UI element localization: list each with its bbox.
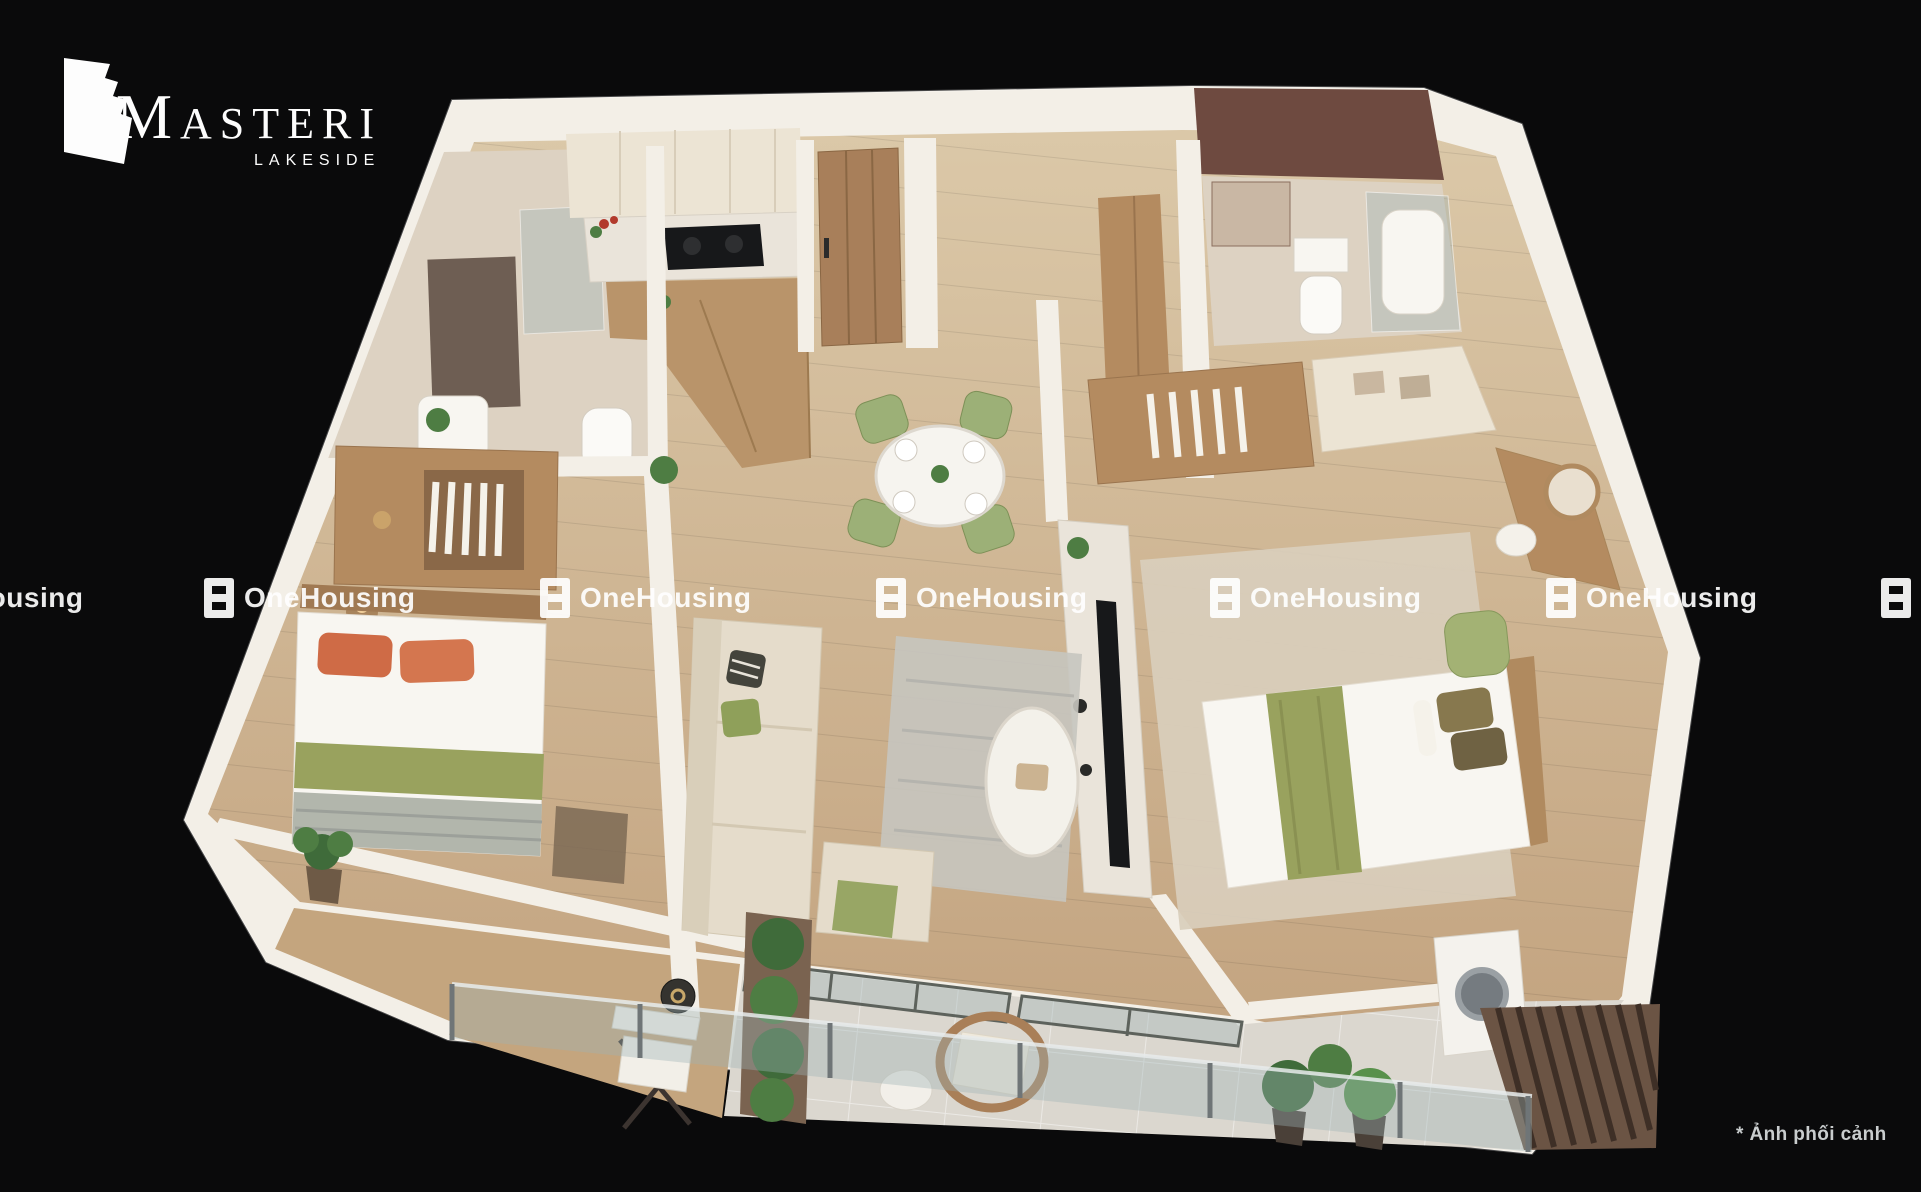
plate [963,441,985,463]
orange-pillow [317,632,393,678]
orange-pillow [399,639,474,684]
table-centerpiece [931,465,949,483]
door-jamb [796,140,814,352]
floor-mat [552,806,628,884]
vanity-chair [1496,524,1536,556]
plant-pot [306,866,342,904]
bathroom-1-mirror [427,257,520,410]
watermark: OneHousing [204,578,415,618]
bathroom-1-flowers [426,408,450,432]
deco-bottles [610,216,618,224]
bathroom-2-mirror [1212,182,1290,246]
watermark-label: OneHousing [580,582,751,614]
onehousing-logo-icon [1546,578,1576,618]
watermark-label: OneHousing [244,582,415,614]
onehousing-logo-icon [1210,578,1240,618]
door-handle [824,238,829,258]
watermark: OneHousing [540,578,751,618]
storage-box [1353,371,1385,396]
bathroom-2-toilet [1300,276,1342,334]
watermark: OneHousing [1210,578,1421,618]
watermark: OneHousing [1546,578,1757,618]
bedroom-2-wardrobe [1088,362,1314,484]
round-mirror [1546,466,1598,518]
plate [895,439,917,461]
hedge-foliage [750,1078,794,1122]
tv-deco [1080,764,1092,776]
watermark-label: OneHousing [0,582,83,614]
watermark-label: OneHousing [1250,582,1421,614]
plant-foliage [293,827,319,853]
brand-subtitle: LAKESIDE [254,152,380,170]
onehousing-logo-icon [876,578,906,618]
bathroom-2-sink [1294,238,1348,272]
onehousing-logo-icon [1881,578,1911,618]
green-throw [832,880,898,938]
burner [683,237,701,255]
onehousing-logo-icon [204,578,234,618]
kitchen-plant [590,226,602,238]
patterned-pillow [1435,686,1494,733]
storage-box [1399,375,1431,400]
corner-plant [650,456,678,484]
hedge-foliage [752,918,804,970]
perspective-disclaimer: * Ảnh phối cảnh [1736,1124,1887,1146]
checkered-pillow [725,649,766,689]
brand-name: MASTERI [116,86,382,149]
door-jamb [904,138,938,348]
green-pillow [720,698,762,738]
green-stool [1443,609,1511,679]
bathroom-2-dark-wall [1194,88,1444,180]
burner [725,235,743,253]
kitchen-upper-cabinets [566,128,802,218]
watermark: OneHousing [0,578,83,618]
bathroom-2 [1194,88,1462,346]
entry-door [818,148,902,346]
watermark-label: OneHousing [916,582,1087,614]
apartment-3d-floorplan-scene: MASTERI LAKESIDE OneHousing OneHousing O… [0,0,1921,1192]
bathtub [1382,210,1444,314]
tv-wall-plant [1067,537,1089,559]
watermark: OneHousing [1881,578,1921,618]
plant-foliage [327,831,353,857]
table-tray [1015,763,1049,791]
deco-bottles [599,219,609,229]
plate [893,491,915,513]
plate [965,493,987,515]
brand-logo: MASTERI LAKESIDE [58,50,388,190]
handbag [373,511,391,529]
cooktop [664,224,764,270]
watermark: OneHousing [876,578,1087,618]
onehousing-logo-icon [540,578,570,618]
watermark-label: OneHousing [1586,582,1757,614]
patterned-pillow [1450,726,1509,771]
